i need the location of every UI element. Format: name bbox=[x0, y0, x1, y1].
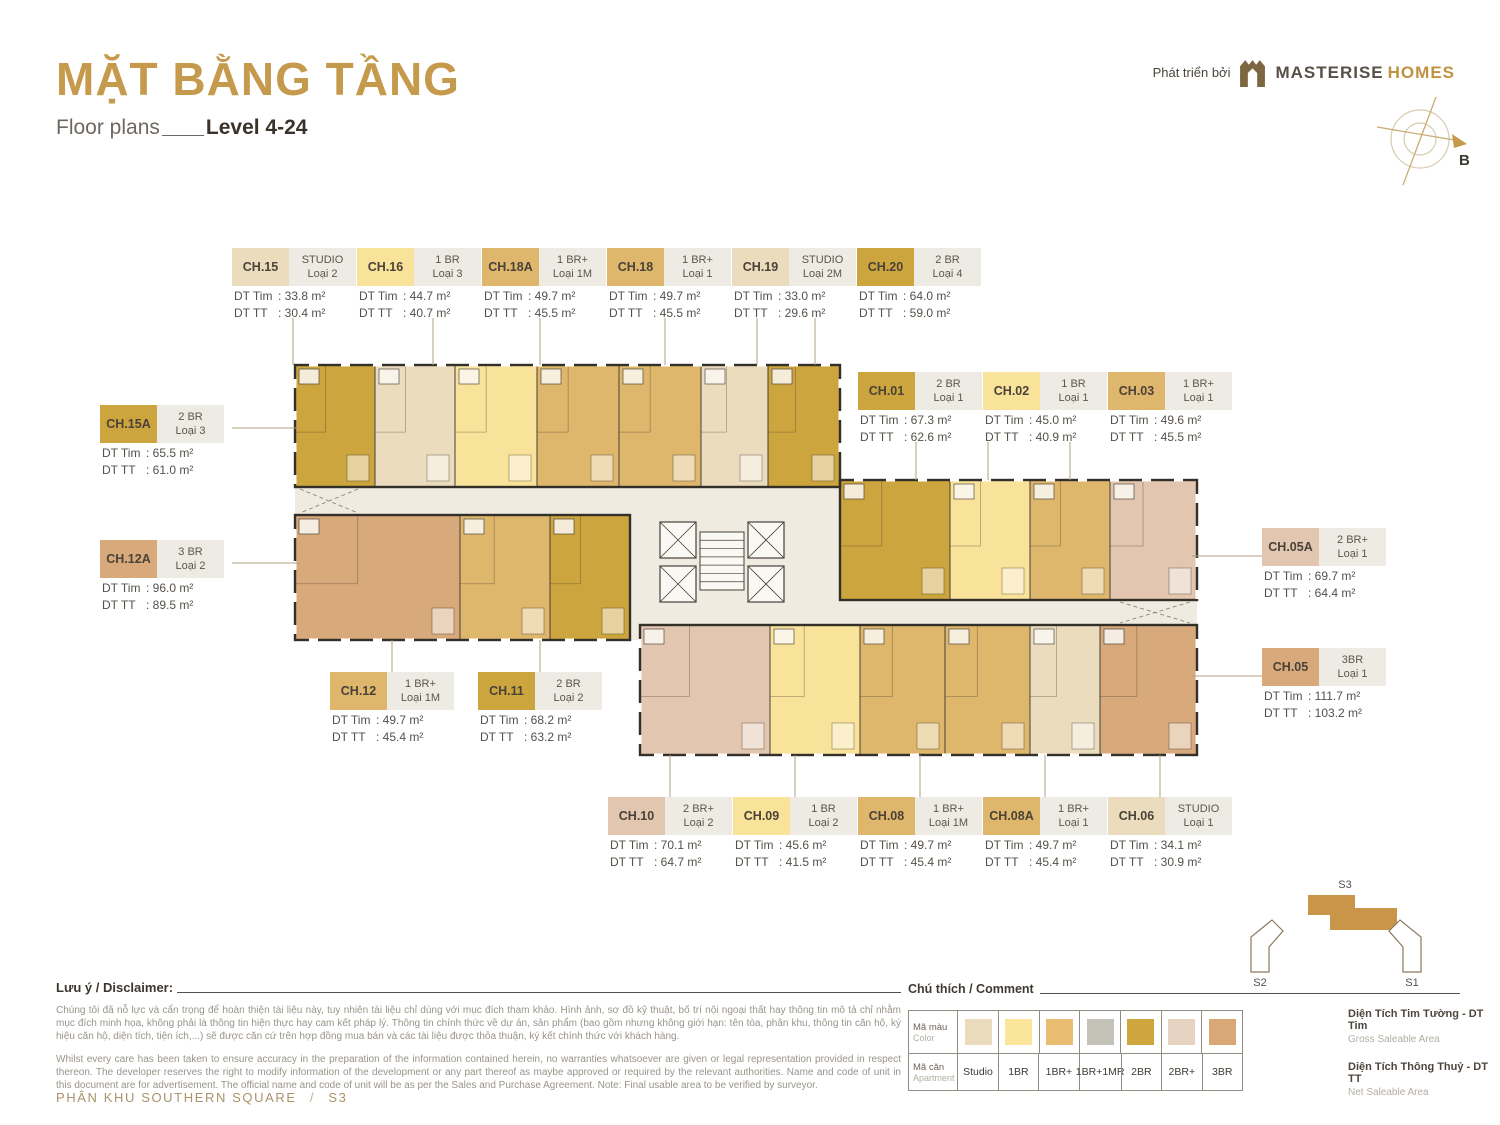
unit-loai: Loại 2 bbox=[684, 816, 714, 830]
dt-tt-row: DT TT: 30.4 m² bbox=[232, 306, 356, 320]
area-definitions: Diện Tích Tim Tường - DT Tim Gross Salea… bbox=[1348, 1008, 1500, 1114]
unit-type-badge: 3 BRLoại 2 bbox=[157, 540, 224, 578]
dt-tt-value: : 89.5 m² bbox=[146, 598, 224, 612]
site-minimap: S3 S2 S1 bbox=[1230, 870, 1450, 995]
dt-tt-label: DT TT bbox=[610, 855, 654, 869]
dt-tim-label: DT Tim bbox=[860, 413, 904, 427]
dt-tt-label: DT TT bbox=[1110, 430, 1154, 444]
plan-unit-CH06 bbox=[1030, 625, 1100, 755]
minimap-tower-s2 bbox=[1251, 920, 1283, 972]
plan-unit-CH02 bbox=[950, 480, 1030, 600]
unit-type-badge: 3BRLoại 1 bbox=[1319, 648, 1386, 686]
unit-type: 2 BR bbox=[936, 377, 960, 391]
unit-loai: Loại 2 bbox=[809, 816, 839, 830]
legend-color-row: Mã màu Color bbox=[909, 1011, 1242, 1053]
dt-tt-value: : 30.4 m² bbox=[278, 306, 356, 320]
dt-tt-row: DT TT: 89.5 m² bbox=[100, 598, 224, 612]
unit-id-badge: CH.19 bbox=[732, 248, 789, 286]
dt-tt-label: DT TT bbox=[609, 306, 653, 320]
dt-tt-label: DT TT bbox=[102, 463, 146, 477]
dt-tim-row: DT Tim: 44.7 m² bbox=[357, 289, 481, 303]
legend-swatch-cell bbox=[1201, 1011, 1242, 1053]
unit-id-badge: CH.12A bbox=[100, 540, 157, 578]
plan-unit-CH19 bbox=[701, 365, 768, 487]
dt-tt-row: DT TT: 29.6 m² bbox=[732, 306, 856, 320]
plan-unit-CH12A bbox=[295, 515, 460, 640]
callout-boxes: CH.202 BRLoại 4 bbox=[857, 248, 981, 286]
dt-tt-row: DT TT: 45.5 m² bbox=[1108, 430, 1232, 444]
unit-callout-CH18: CH.181 BR+Loại 1DT Tim: 49.7 m²DT TT: 45… bbox=[607, 248, 731, 320]
compass-icon: B bbox=[1375, 95, 1490, 190]
disclaimer-text-en: Whilst every care has been taken to ensu… bbox=[56, 1053, 901, 1093]
unit-type-badge: 1 BRLoại 1 bbox=[1040, 372, 1107, 410]
dt-tim-row: DT Tim: 33.0 m² bbox=[732, 289, 856, 303]
dt-tt-row: DT TT: 61.0 m² bbox=[100, 463, 224, 477]
dt-tim-value: : 49.7 m² bbox=[653, 289, 731, 303]
callout-boxes: CH.181 BR+Loại 1 bbox=[607, 248, 731, 286]
legend-swatch-1BR+1MR bbox=[1087, 1019, 1114, 1045]
plan-unit-CH03 bbox=[1030, 480, 1110, 600]
unit-loai: Loại 2 bbox=[176, 559, 206, 573]
dt-tim-value: : 33.0 m² bbox=[778, 289, 856, 303]
brand-masterise: MASTERISE bbox=[1275, 63, 1383, 82]
plan-unit-CH16 bbox=[455, 365, 537, 487]
dt-tim-row: DT Tim: 49.7 m² bbox=[983, 838, 1107, 852]
unit-loai: Loại 1 bbox=[934, 391, 964, 405]
unit-id-badge: CH.05 bbox=[1262, 648, 1319, 686]
unit-type: 1 BR+ bbox=[933, 802, 964, 816]
dt-tt-label: DT TT bbox=[359, 306, 403, 320]
dt-tt-value: : 103.2 m² bbox=[1308, 706, 1386, 720]
area-def-net-en: Net Saleable Area bbox=[1348, 1087, 1500, 1098]
dt-tim-label: DT Tim bbox=[1110, 838, 1154, 852]
unit-id-badge: CH.05A bbox=[1262, 528, 1319, 566]
page-subtitle: Floor plans Level 4-24 bbox=[56, 116, 460, 140]
legend-swatch-2BR+ bbox=[1168, 1019, 1195, 1045]
callout-boxes: CH.06STUDIOLoại 1 bbox=[1108, 797, 1232, 835]
unit-callout-CH12: CH.121 BR+Loại 1MDT Tim: 49.7 m²DT TT: 4… bbox=[330, 672, 454, 744]
dt-tt-value: : 62.6 m² bbox=[904, 430, 982, 444]
header: MẶT BẰNG TẦNG Floor plans Level 4-24 bbox=[56, 52, 460, 140]
dt-tt-value: : 30.9 m² bbox=[1154, 855, 1232, 869]
legend-type-name: 3BR bbox=[1202, 1054, 1242, 1090]
unit-id-badge: CH.09 bbox=[733, 797, 790, 835]
dt-tim-value: : 49.7 m² bbox=[528, 289, 606, 303]
unit-loai: Loại 2 bbox=[554, 691, 584, 705]
legend-swatch-cell bbox=[957, 1011, 998, 1053]
callout-boxes: CH.15STUDIOLoại 2 bbox=[232, 248, 356, 286]
callout-boxes: CH.091 BRLoại 2 bbox=[733, 797, 857, 835]
unit-type-badge: 1 BR+Loại 1M bbox=[539, 248, 606, 286]
unit-type-badge: STUDIOLoại 1 bbox=[1165, 797, 1232, 835]
legend-swatch-1BR bbox=[1005, 1019, 1032, 1045]
unit-type: 1 BR+ bbox=[557, 253, 588, 267]
dt-tim-value: : 64.0 m² bbox=[903, 289, 981, 303]
dt-tim-label: DT Tim bbox=[1264, 569, 1308, 583]
plan-unit-CH08A bbox=[945, 625, 1030, 755]
plan-unit-CH11 bbox=[550, 515, 630, 640]
dt-tim-value: : 45.6 m² bbox=[779, 838, 857, 852]
dt-tt-row: DT TT: 59.0 m² bbox=[857, 306, 981, 320]
dt-tim-row: DT Tim: 70.1 m² bbox=[608, 838, 732, 852]
unit-type-badge: 1 BR+Loại 1M bbox=[387, 672, 454, 710]
developer-brand: Phát triển bởi MASTERISEHOMES bbox=[1153, 58, 1455, 87]
plan-unit-CH15 bbox=[375, 365, 455, 487]
dt-tim-row: DT Tim: 49.7 m² bbox=[482, 289, 606, 303]
dt-tt-row: DT TT: 45.4 m² bbox=[983, 855, 1107, 869]
unit-callout-CH12A: CH.12A3 BRLoại 2DT Tim: 96.0 m²DT TT: 89… bbox=[100, 540, 224, 612]
callout-boxes: CH.053BRLoại 1 bbox=[1262, 648, 1386, 686]
plan-unit-CH12 bbox=[460, 515, 550, 640]
legend-swatch-1BR+ bbox=[1046, 1019, 1073, 1045]
dt-tt-value: : 64.7 m² bbox=[654, 855, 732, 869]
unit-loai: Loại 1M bbox=[929, 816, 968, 830]
legend-color-label: Mã màu bbox=[913, 1022, 947, 1033]
dt-tim-value: : 44.7 m² bbox=[403, 289, 481, 303]
unit-callout-CH18A: CH.18A1 BR+Loại 1MDT Tim: 49.7 m²DT TT: … bbox=[482, 248, 606, 320]
dt-tim-label: DT Tim bbox=[860, 838, 904, 852]
plan-unit-CH05 bbox=[1100, 625, 1197, 755]
dt-tt-value: : 29.6 m² bbox=[778, 306, 856, 320]
legend-swatch-2BR bbox=[1127, 1019, 1154, 1045]
unit-callout-CH02: CH.021 BRLoại 1DT Tim: 45.0 m²DT TT: 40.… bbox=[983, 372, 1107, 444]
unit-type: STUDIO bbox=[802, 253, 844, 267]
dt-tt-label: DT TT bbox=[484, 306, 528, 320]
unit-type-badge: 2 BRLoại 2 bbox=[535, 672, 602, 710]
dt-tt-value: : 45.4 m² bbox=[376, 730, 454, 744]
brand-homes: HOMES bbox=[1388, 63, 1455, 82]
dt-tim-value: : 65.5 m² bbox=[146, 446, 224, 460]
dt-tt-value: : 45.4 m² bbox=[1029, 855, 1107, 869]
legend-type-name: 2BR bbox=[1121, 1054, 1161, 1090]
callout-boxes: CH.15A2 BRLoại 3 bbox=[100, 405, 224, 443]
plan-unit-CH08 bbox=[860, 625, 945, 755]
legend-swatch-3BR bbox=[1209, 1019, 1236, 1045]
legend-swatch-cell bbox=[1079, 1011, 1120, 1053]
dt-tt-row: DT TT: 64.4 m² bbox=[1262, 586, 1386, 600]
unit-id-badge: CH.03 bbox=[1108, 372, 1165, 410]
subtitle-floor-plans: Floor plans bbox=[56, 116, 160, 140]
unit-id-badge: CH.15A bbox=[100, 405, 157, 443]
footer-code: S3 bbox=[328, 1090, 347, 1105]
callout-boxes: CH.102 BR+Loại 2 bbox=[608, 797, 732, 835]
unit-id-badge: CH.02 bbox=[983, 372, 1040, 410]
unit-type-badge: STUDIOLoại 2M bbox=[789, 248, 856, 286]
dt-tim-label: DT Tim bbox=[1110, 413, 1154, 427]
unit-type: 1 BR+ bbox=[1183, 377, 1214, 391]
legend-type-label: Mã căn bbox=[913, 1062, 944, 1073]
unit-callout-CH10: CH.102 BR+Loại 2DT Tim: 70.1 m²DT TT: 64… bbox=[608, 797, 732, 869]
legend-color-sublabel: Color bbox=[913, 1033, 935, 1043]
unit-type: 1 BR bbox=[811, 802, 835, 816]
unit-callout-CH05A: CH.05A2 BR+Loại 1DT Tim: 69.7 m²DT TT: 6… bbox=[1262, 528, 1386, 600]
legend-type-name: 1BR bbox=[998, 1054, 1038, 1090]
dt-tim-label: DT Tim bbox=[985, 838, 1029, 852]
unit-callout-CH15: CH.15STUDIOLoại 2DT Tim: 33.8 m²DT TT: 3… bbox=[232, 248, 356, 320]
unit-type-badge: 2 BRLoại 3 bbox=[157, 405, 224, 443]
page-title: MẶT BẰNG TẦNG bbox=[56, 52, 460, 106]
dt-tim-value: : 34.1 m² bbox=[1154, 838, 1232, 852]
legend-swatch-cell bbox=[1161, 1011, 1202, 1053]
unit-type-badge: 1 BRLoại 3 bbox=[414, 248, 481, 286]
unit-type-badge: 2 BRLoại 4 bbox=[914, 248, 981, 286]
dt-tt-row: DT TT: 41.5 m² bbox=[733, 855, 857, 869]
legend-type-header: Mã căn Apartment bbox=[909, 1054, 957, 1090]
unit-type: 1 BR+ bbox=[405, 677, 436, 691]
area-def-gross: Diện Tích Tim Tường - DT Tim Gross Salea… bbox=[1348, 1008, 1500, 1045]
unit-loai: Loại 1 bbox=[1184, 391, 1214, 405]
dt-tt-row: DT TT: 63.2 m² bbox=[478, 730, 602, 744]
disclaimer-title-rule bbox=[177, 992, 901, 993]
dt-tt-row: DT TT: 30.9 m² bbox=[1108, 855, 1232, 869]
dt-tim-value: : 49.7 m² bbox=[1029, 838, 1107, 852]
developer-name: MASTERISEHOMES bbox=[1275, 63, 1455, 83]
dt-tt-label: DT TT bbox=[1264, 706, 1308, 720]
plan-unit-CH18 bbox=[619, 365, 701, 487]
legend-title-rule bbox=[1040, 993, 1460, 994]
unit-type-badge: 2 BRLoại 1 bbox=[915, 372, 982, 410]
plan-unit-CH15A bbox=[295, 365, 375, 487]
unit-callout-CH15A: CH.15A2 BRLoại 3DT Tim: 65.5 m²DT TT: 61… bbox=[100, 405, 224, 477]
dt-tim-row: DT Tim: 111.7 m² bbox=[1262, 689, 1386, 703]
unit-callout-CH20: CH.202 BRLoại 4DT Tim: 64.0 m²DT TT: 59.… bbox=[857, 248, 981, 320]
callout-boxes: CH.05A2 BR+Loại 1 bbox=[1262, 528, 1386, 566]
unit-id-badge: CH.16 bbox=[357, 248, 414, 286]
dt-tim-row: DT Tim: 49.6 m² bbox=[1108, 413, 1232, 427]
dt-tt-value: : 63.2 m² bbox=[524, 730, 602, 744]
legend-swatch-cell bbox=[1039, 1011, 1080, 1053]
unit-callout-CH01: CH.012 BRLoại 1DT Tim: 67.3 m²DT TT: 62.… bbox=[858, 372, 982, 444]
dt-tt-label: DT TT bbox=[1110, 855, 1154, 869]
unit-loai: Loại 4 bbox=[933, 267, 963, 281]
callout-boxes: CH.112 BRLoại 2 bbox=[478, 672, 602, 710]
dt-tt-row: DT TT: 64.7 m² bbox=[608, 855, 732, 869]
unit-callout-CH06: CH.06STUDIOLoại 1DT Tim: 34.1 m²DT TT: 3… bbox=[1108, 797, 1232, 869]
dt-tim-value: : 49.6 m² bbox=[1154, 413, 1232, 427]
dt-tim-row: DT Tim: 65.5 m² bbox=[100, 446, 224, 460]
dt-tt-label: DT TT bbox=[985, 855, 1029, 869]
unit-id-badge: CH.06 bbox=[1108, 797, 1165, 835]
dt-tim-label: DT Tim bbox=[609, 289, 653, 303]
unit-type-badge: 2 BR+Loại 1 bbox=[1319, 528, 1386, 566]
plan-unit-CH05A bbox=[1110, 480, 1197, 600]
unit-callout-CH09: CH.091 BRLoại 2DT Tim: 45.6 m²DT TT: 41.… bbox=[733, 797, 857, 869]
unit-type-badge: 1 BRLoại 2 bbox=[790, 797, 857, 835]
minimap-tower-s3 bbox=[1308, 895, 1397, 930]
footer-zone: PHÂN KHU SOUTHERN SQUARE bbox=[56, 1090, 297, 1105]
dt-tim-value: : 49.7 m² bbox=[904, 838, 982, 852]
callout-boxes: CH.121 BR+Loại 1M bbox=[330, 672, 454, 710]
area-def-gross-vi: Diện Tích Tim Tường - DT Tim bbox=[1348, 1008, 1500, 1032]
unit-type: 1 BR bbox=[1061, 377, 1085, 391]
unit-loai: Loại 2M bbox=[803, 267, 842, 281]
dt-tim-row: DT Tim: 45.0 m² bbox=[983, 413, 1107, 427]
unit-type-badge: 1 BR+Loại 1 bbox=[1165, 372, 1232, 410]
dt-tim-row: DT Tim: 96.0 m² bbox=[100, 581, 224, 595]
callout-boxes: CH.021 BRLoại 1 bbox=[983, 372, 1107, 410]
unit-type: 1 BR bbox=[435, 253, 459, 267]
unit-loai: Loại 2 bbox=[308, 267, 338, 281]
dt-tim-value: : 33.8 m² bbox=[278, 289, 356, 303]
dt-tt-label: DT TT bbox=[859, 306, 903, 320]
legend-type-row: Mã căn Apartment Studio1BR1BR+1BR+1MR2BR… bbox=[909, 1053, 1242, 1090]
dt-tt-label: DT TT bbox=[234, 306, 278, 320]
callout-boxes: CH.08A1 BR+Loại 1 bbox=[983, 797, 1107, 835]
callout-boxes: CH.081 BR+Loại 1M bbox=[858, 797, 982, 835]
dt-tim-label: DT Tim bbox=[735, 838, 779, 852]
dt-tt-row: DT TT: 62.6 m² bbox=[858, 430, 982, 444]
legend-type-sublabel: Apartment bbox=[913, 1073, 955, 1083]
dt-tim-label: DT Tim bbox=[484, 289, 528, 303]
legend-swatch-cell bbox=[1120, 1011, 1161, 1053]
legend-swatch-cell bbox=[998, 1011, 1039, 1053]
legend-type-name: 1BR+ bbox=[1038, 1054, 1078, 1090]
unit-loai: Loại 1 bbox=[1059, 816, 1089, 830]
dt-tt-label: DT TT bbox=[332, 730, 376, 744]
dt-tim-row: DT Tim: 68.2 m² bbox=[478, 713, 602, 727]
unit-callout-CH16: CH.161 BRLoại 3DT Tim: 44.7 m²DT TT: 40.… bbox=[357, 248, 481, 320]
unit-loai: Loại 1 bbox=[1059, 391, 1089, 405]
dt-tim-row: DT Tim: 49.7 m² bbox=[607, 289, 731, 303]
plan-unit-CH18A bbox=[537, 365, 619, 487]
unit-id-badge: CH.08 bbox=[858, 797, 915, 835]
callout-boxes: CH.012 BRLoại 1 bbox=[858, 372, 982, 410]
dt-tim-row: DT Tim: 69.7 m² bbox=[1262, 569, 1386, 583]
unit-type: STUDIO bbox=[1178, 802, 1220, 816]
disclaimer-block: Lưu ý / Disclaimer: Chúng tôi đã nỗ lực … bbox=[56, 980, 901, 1092]
unit-id-badge: CH.01 bbox=[858, 372, 915, 410]
dt-tim-label: DT Tim bbox=[610, 838, 654, 852]
dt-tt-value: : 45.5 m² bbox=[528, 306, 606, 320]
unit-id-badge: CH.11 bbox=[478, 672, 535, 710]
dt-tt-row: DT TT: 45.4 m² bbox=[330, 730, 454, 744]
footer: PHÂN KHU SOUTHERN SQUARE / S3 bbox=[56, 1090, 347, 1105]
unit-type: 2 BR+ bbox=[1337, 533, 1368, 547]
dt-tt-label: DT TT bbox=[1264, 586, 1308, 600]
dt-tim-label: DT Tim bbox=[102, 581, 146, 595]
unit-loai: Loại 1 bbox=[1338, 667, 1368, 681]
dt-tim-row: DT Tim: 49.7 m² bbox=[330, 713, 454, 727]
unit-callout-CH08A: CH.08A1 BR+Loại 1DT Tim: 49.7 m²DT TT: 4… bbox=[983, 797, 1107, 869]
dt-tt-label: DT TT bbox=[735, 855, 779, 869]
dt-tim-label: DT Tim bbox=[359, 289, 403, 303]
dt-tim-row: DT Tim: 45.6 m² bbox=[733, 838, 857, 852]
dt-tt-value: : 59.0 m² bbox=[903, 306, 981, 320]
area-def-net: Diện Tích Thông Thuỷ - DT TT Net Saleabl… bbox=[1348, 1061, 1500, 1098]
dt-tim-label: DT Tim bbox=[332, 713, 376, 727]
footer-separator: / bbox=[310, 1090, 315, 1105]
dt-tim-value: : 69.7 m² bbox=[1308, 569, 1386, 583]
masterise-logo-icon bbox=[1239, 58, 1266, 87]
dt-tim-label: DT Tim bbox=[102, 446, 146, 460]
dt-tt-label: DT TT bbox=[480, 730, 524, 744]
subtitle-level: Level 4-24 bbox=[206, 116, 308, 140]
dt-tim-row: DT Tim: 34.1 m² bbox=[1108, 838, 1232, 852]
unit-type: 3 BR bbox=[178, 545, 202, 559]
dt-tim-label: DT Tim bbox=[859, 289, 903, 303]
unit-type: 3BR bbox=[1342, 653, 1363, 667]
dt-tim-value: : 111.7 m² bbox=[1308, 689, 1386, 703]
callout-boxes: CH.12A3 BRLoại 2 bbox=[100, 540, 224, 578]
unit-loai: Loại 1 bbox=[683, 267, 713, 281]
dt-tt-label: DT TT bbox=[985, 430, 1029, 444]
unit-callout-CH19: CH.19STUDIOLoại 2MDT Tim: 33.0 m²DT TT: … bbox=[732, 248, 856, 320]
legend-title: Chú thích / Comment bbox=[908, 982, 1034, 996]
plan-unit-CH10 bbox=[640, 625, 770, 755]
unit-callout-CH05: CH.053BRLoại 1DT Tim: 111.7 m²DT TT: 103… bbox=[1262, 648, 1386, 720]
dt-tt-value: : 61.0 m² bbox=[146, 463, 224, 477]
dt-tt-label: DT TT bbox=[102, 598, 146, 612]
legend-type-name: 1BR+1MR bbox=[1079, 1054, 1121, 1090]
compass-north-arrow bbox=[1452, 134, 1467, 148]
dt-tim-value: : 49.7 m² bbox=[376, 713, 454, 727]
dt-tt-value: : 40.7 m² bbox=[403, 306, 481, 320]
minimap-label-s3: S3 bbox=[1338, 879, 1351, 891]
unit-type-badge: 1 BR+Loại 1 bbox=[664, 248, 731, 286]
dt-tim-label: DT Tim bbox=[1264, 689, 1308, 703]
dt-tt-row: DT TT: 40.7 m² bbox=[357, 306, 481, 320]
unit-type: 1 BR+ bbox=[1058, 802, 1089, 816]
dt-tim-value: : 96.0 m² bbox=[146, 581, 224, 595]
legend-color-header: Mã màu Color bbox=[909, 1011, 957, 1053]
unit-callout-CH11: CH.112 BRLoại 2DT Tim: 68.2 m²DT TT: 63.… bbox=[478, 672, 602, 744]
unit-type: 2 BR bbox=[935, 253, 959, 267]
unit-id-badge: CH.08A bbox=[983, 797, 1040, 835]
unit-loai: Loại 3 bbox=[176, 424, 206, 438]
callout-boxes: CH.19STUDIOLoại 2M bbox=[732, 248, 856, 286]
unit-type-badge: STUDIOLoại 2 bbox=[289, 248, 356, 286]
unit-callout-CH08: CH.081 BR+Loại 1MDT Tim: 49.7 m²DT TT: 4… bbox=[858, 797, 982, 869]
dt-tim-value: : 68.2 m² bbox=[524, 713, 602, 727]
unit-type: STUDIO bbox=[302, 253, 344, 267]
subtitle-rule bbox=[162, 135, 204, 136]
plan-unit-CH09 bbox=[770, 625, 860, 755]
unit-id-badge: CH.10 bbox=[608, 797, 665, 835]
unit-type: 2 BR bbox=[178, 410, 202, 424]
unit-loai: Loại 1 bbox=[1184, 816, 1214, 830]
legend-swatch-Studio bbox=[965, 1019, 992, 1045]
unit-type: 1 BR+ bbox=[682, 253, 713, 267]
unit-id-badge: CH.15 bbox=[232, 248, 289, 286]
dt-tt-row: DT TT: 40.9 m² bbox=[983, 430, 1107, 444]
plan-unit-CH01 bbox=[840, 480, 950, 600]
callout-boxes: CH.18A1 BR+Loại 1M bbox=[482, 248, 606, 286]
unit-loai: Loại 1M bbox=[401, 691, 440, 705]
unit-type-badge: 1 BR+Loại 1 bbox=[1040, 797, 1107, 835]
unit-id-badge: CH.12 bbox=[330, 672, 387, 710]
dt-tt-value: : 45.5 m² bbox=[1154, 430, 1232, 444]
floor-plan-sheet: { "header": { "title": "MẶT BẰNG TẦNG", … bbox=[0, 0, 1500, 1125]
dt-tt-label: DT TT bbox=[734, 306, 778, 320]
dt-tim-label: DT Tim bbox=[480, 713, 524, 727]
minimap-tower-s1 bbox=[1389, 920, 1421, 972]
plan-unit-CH20 bbox=[768, 365, 840, 487]
dt-tt-row: DT TT: 45.5 m² bbox=[607, 306, 731, 320]
dt-tim-label: DT Tim bbox=[234, 289, 278, 303]
dt-tim-row: DT Tim: 67.3 m² bbox=[858, 413, 982, 427]
dt-tim-value: : 70.1 m² bbox=[654, 838, 732, 852]
compass-label: B bbox=[1459, 152, 1470, 169]
callout-boxes: CH.031 BR+Loại 1 bbox=[1108, 372, 1232, 410]
dt-tt-value: : 45.5 m² bbox=[653, 306, 731, 320]
dt-tim-label: DT Tim bbox=[734, 289, 778, 303]
dt-tt-value: : 40.9 m² bbox=[1029, 430, 1107, 444]
unit-loai: Loại 1 bbox=[1338, 547, 1368, 561]
unit-type-badge: 1 BR+Loại 1M bbox=[915, 797, 982, 835]
unit-id-badge: CH.20 bbox=[857, 248, 914, 286]
unit-type: 2 BR bbox=[556, 677, 580, 691]
legend-type-name: Studio bbox=[957, 1054, 997, 1090]
